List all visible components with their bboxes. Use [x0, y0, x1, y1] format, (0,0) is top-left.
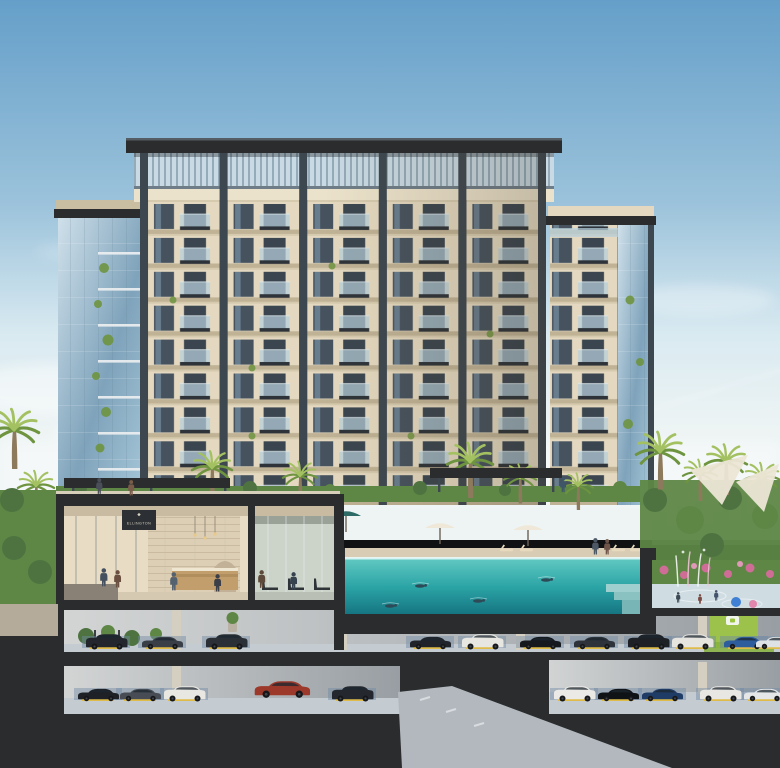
waterline — [344, 557, 640, 560]
partition-cut — [248, 506, 255, 600]
gym-floor — [254, 592, 338, 600]
brand-sign: ELLINGTON — [122, 510, 156, 530]
architectural-rendering: ELLINGTON — [0, 0, 780, 768]
pool-cabana-canopy — [430, 468, 562, 478]
left-tower-roof-slab — [54, 209, 150, 218]
right-edge-column — [648, 225, 654, 505]
terrace-slab — [56, 494, 340, 506]
entry-drive-floor — [62, 584, 118, 600]
reception-desk — [172, 568, 238, 590]
entrance-canopy — [64, 478, 230, 488]
inflatable-toy — [731, 597, 741, 607]
street-landscape-left — [0, 488, 58, 636]
right-wing — [546, 206, 656, 505]
sun-lounger — [500, 545, 513, 552]
cut-face-mid — [334, 494, 344, 650]
canopy-post — [438, 478, 440, 492]
canopy-post — [552, 478, 554, 492]
sun-lounger — [612, 545, 625, 552]
street-path — [0, 604, 58, 636]
cut-edge — [543, 660, 549, 714]
sun-lounger — [520, 545, 533, 552]
right-wing-roof-slab — [546, 216, 656, 225]
ev-plug-icon — [730, 619, 735, 623]
pool-section — [338, 545, 656, 635]
gym — [254, 516, 338, 600]
right-corner-mullions — [618, 225, 652, 505]
cut-earth-left — [0, 616, 64, 768]
main-tower — [126, 138, 562, 505]
flower-hedge — [652, 560, 780, 584]
splash-cut-lip — [652, 608, 780, 616]
gym-ceiling — [254, 516, 338, 524]
sign-text: ELLINGTON — [127, 522, 151, 526]
potted-plant — [227, 612, 239, 632]
left-glass-tower — [54, 200, 150, 504]
lobby-ceiling — [62, 506, 338, 516]
pool-shell-slab — [338, 614, 656, 634]
swim-ring — [749, 600, 757, 608]
scene-canvas: ELLINGTON — [0, 0, 780, 768]
roof-edge-highlight — [126, 138, 562, 141]
gym-interior — [254, 516, 338, 600]
